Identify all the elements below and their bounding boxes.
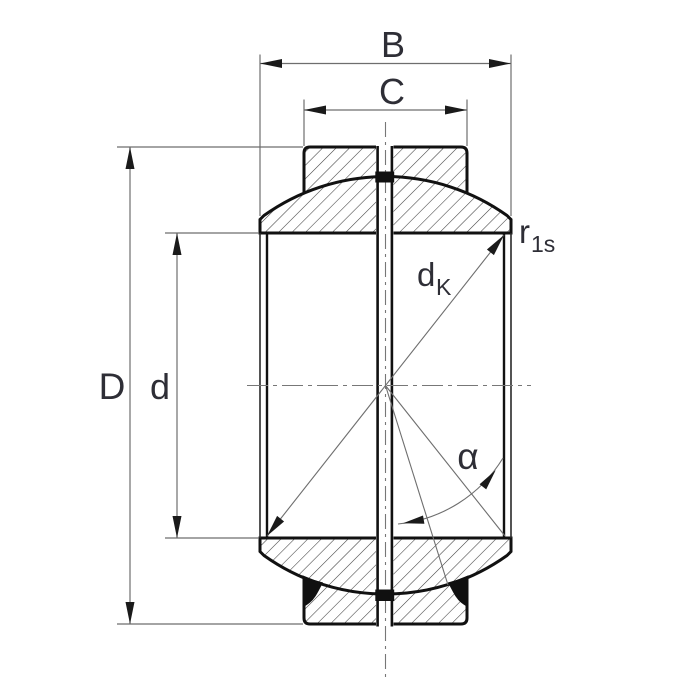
lube-hole-opening-bottom [375,590,394,602]
label-D: D [99,366,126,407]
label-r1s-sub: 1s [531,231,555,257]
label-alpha: α [457,436,478,477]
bearing-cross-section-page: B C D d d K r 1s α [0,0,700,700]
label-B: B [381,24,405,65]
label-C: C [379,71,405,112]
label-d: d [150,366,170,407]
label-dK-sub: K [436,274,452,300]
lube-hole-opening-top [375,172,394,183]
label-r1s: r [519,213,530,250]
bearing-cross-section-diagram: B C D d d K r 1s α [0,0,700,700]
label-dK: d [417,256,435,293]
